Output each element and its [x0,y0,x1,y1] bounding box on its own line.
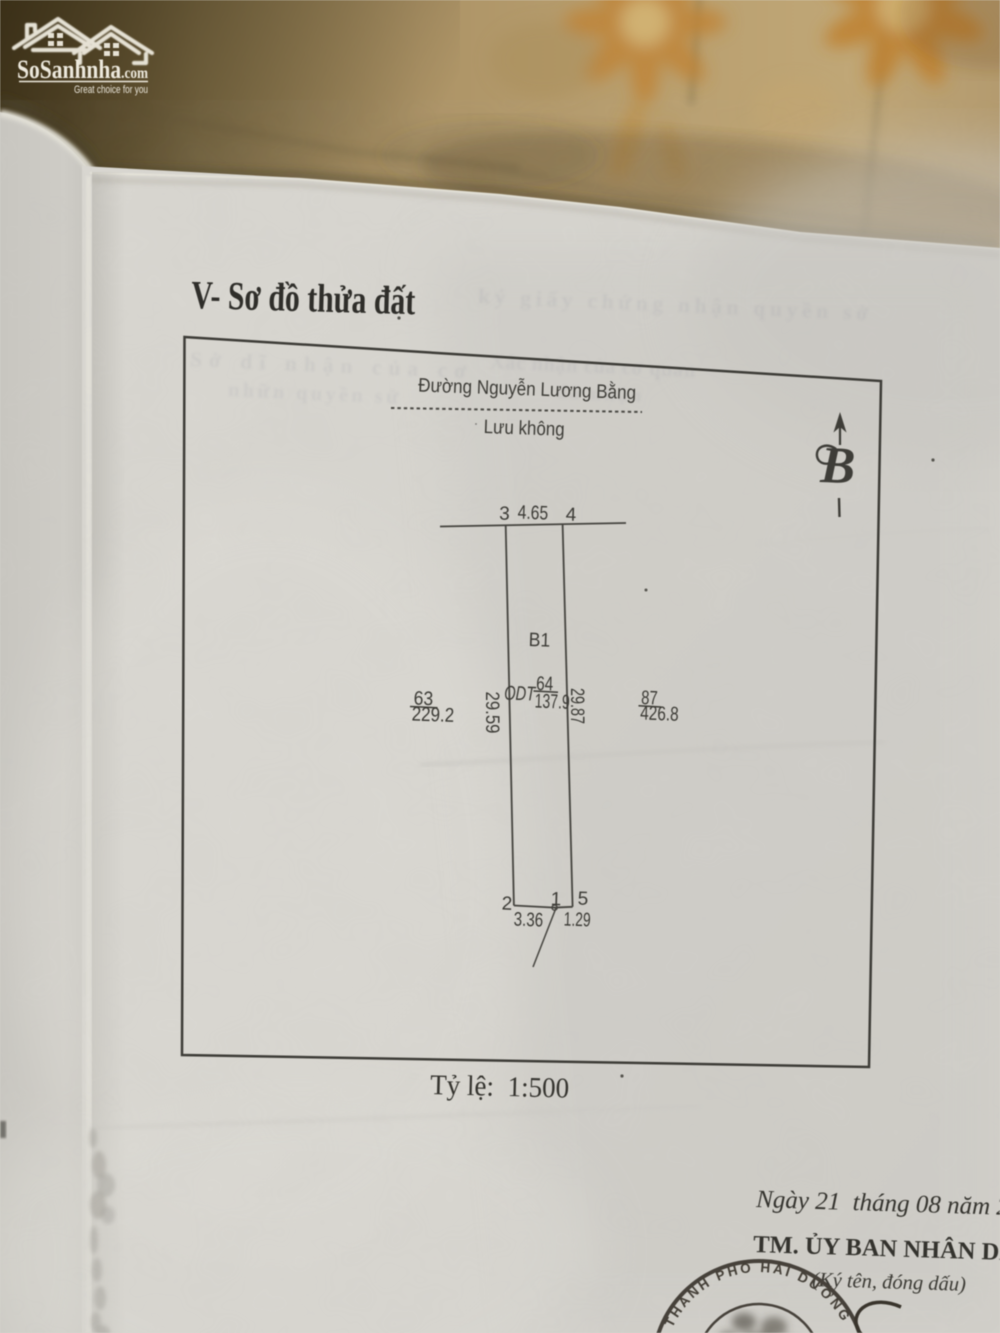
svg-text:B1: B1 [528,629,550,652]
svg-text:3: 3 [499,504,510,525]
svg-text:137.9: 137.9 [534,691,570,714]
svg-text:V- Sơ đồ thửa đất: V- Sơ đồ thửa đất [191,272,417,323]
svg-text:29.87: 29.87 [566,688,588,724]
svg-text:1.29: 1.29 [563,909,591,932]
svg-text:Tỷ lệ: 1:500: Tỷ lệ: 1:500 [430,1070,570,1105]
svg-text:4: 4 [565,505,577,526]
svg-text:Lưu không: Lưu không [483,416,565,441]
svg-text:2: 2 [501,894,512,915]
svg-text:426.8: 426.8 [640,703,679,726]
svg-text:3.36: 3.36 [513,909,543,932]
svg-text:1: 1 [550,889,561,910]
svg-text:ODT: ODT [504,683,537,706]
svg-text:5: 5 [577,889,588,910]
svg-text:29.59: 29.59 [481,692,503,734]
svg-text:Great choice for you: Great choice for you [74,84,148,96]
svg-text:4.65: 4.65 [517,502,548,525]
svg-text:229.2: 229.2 [411,704,454,727]
